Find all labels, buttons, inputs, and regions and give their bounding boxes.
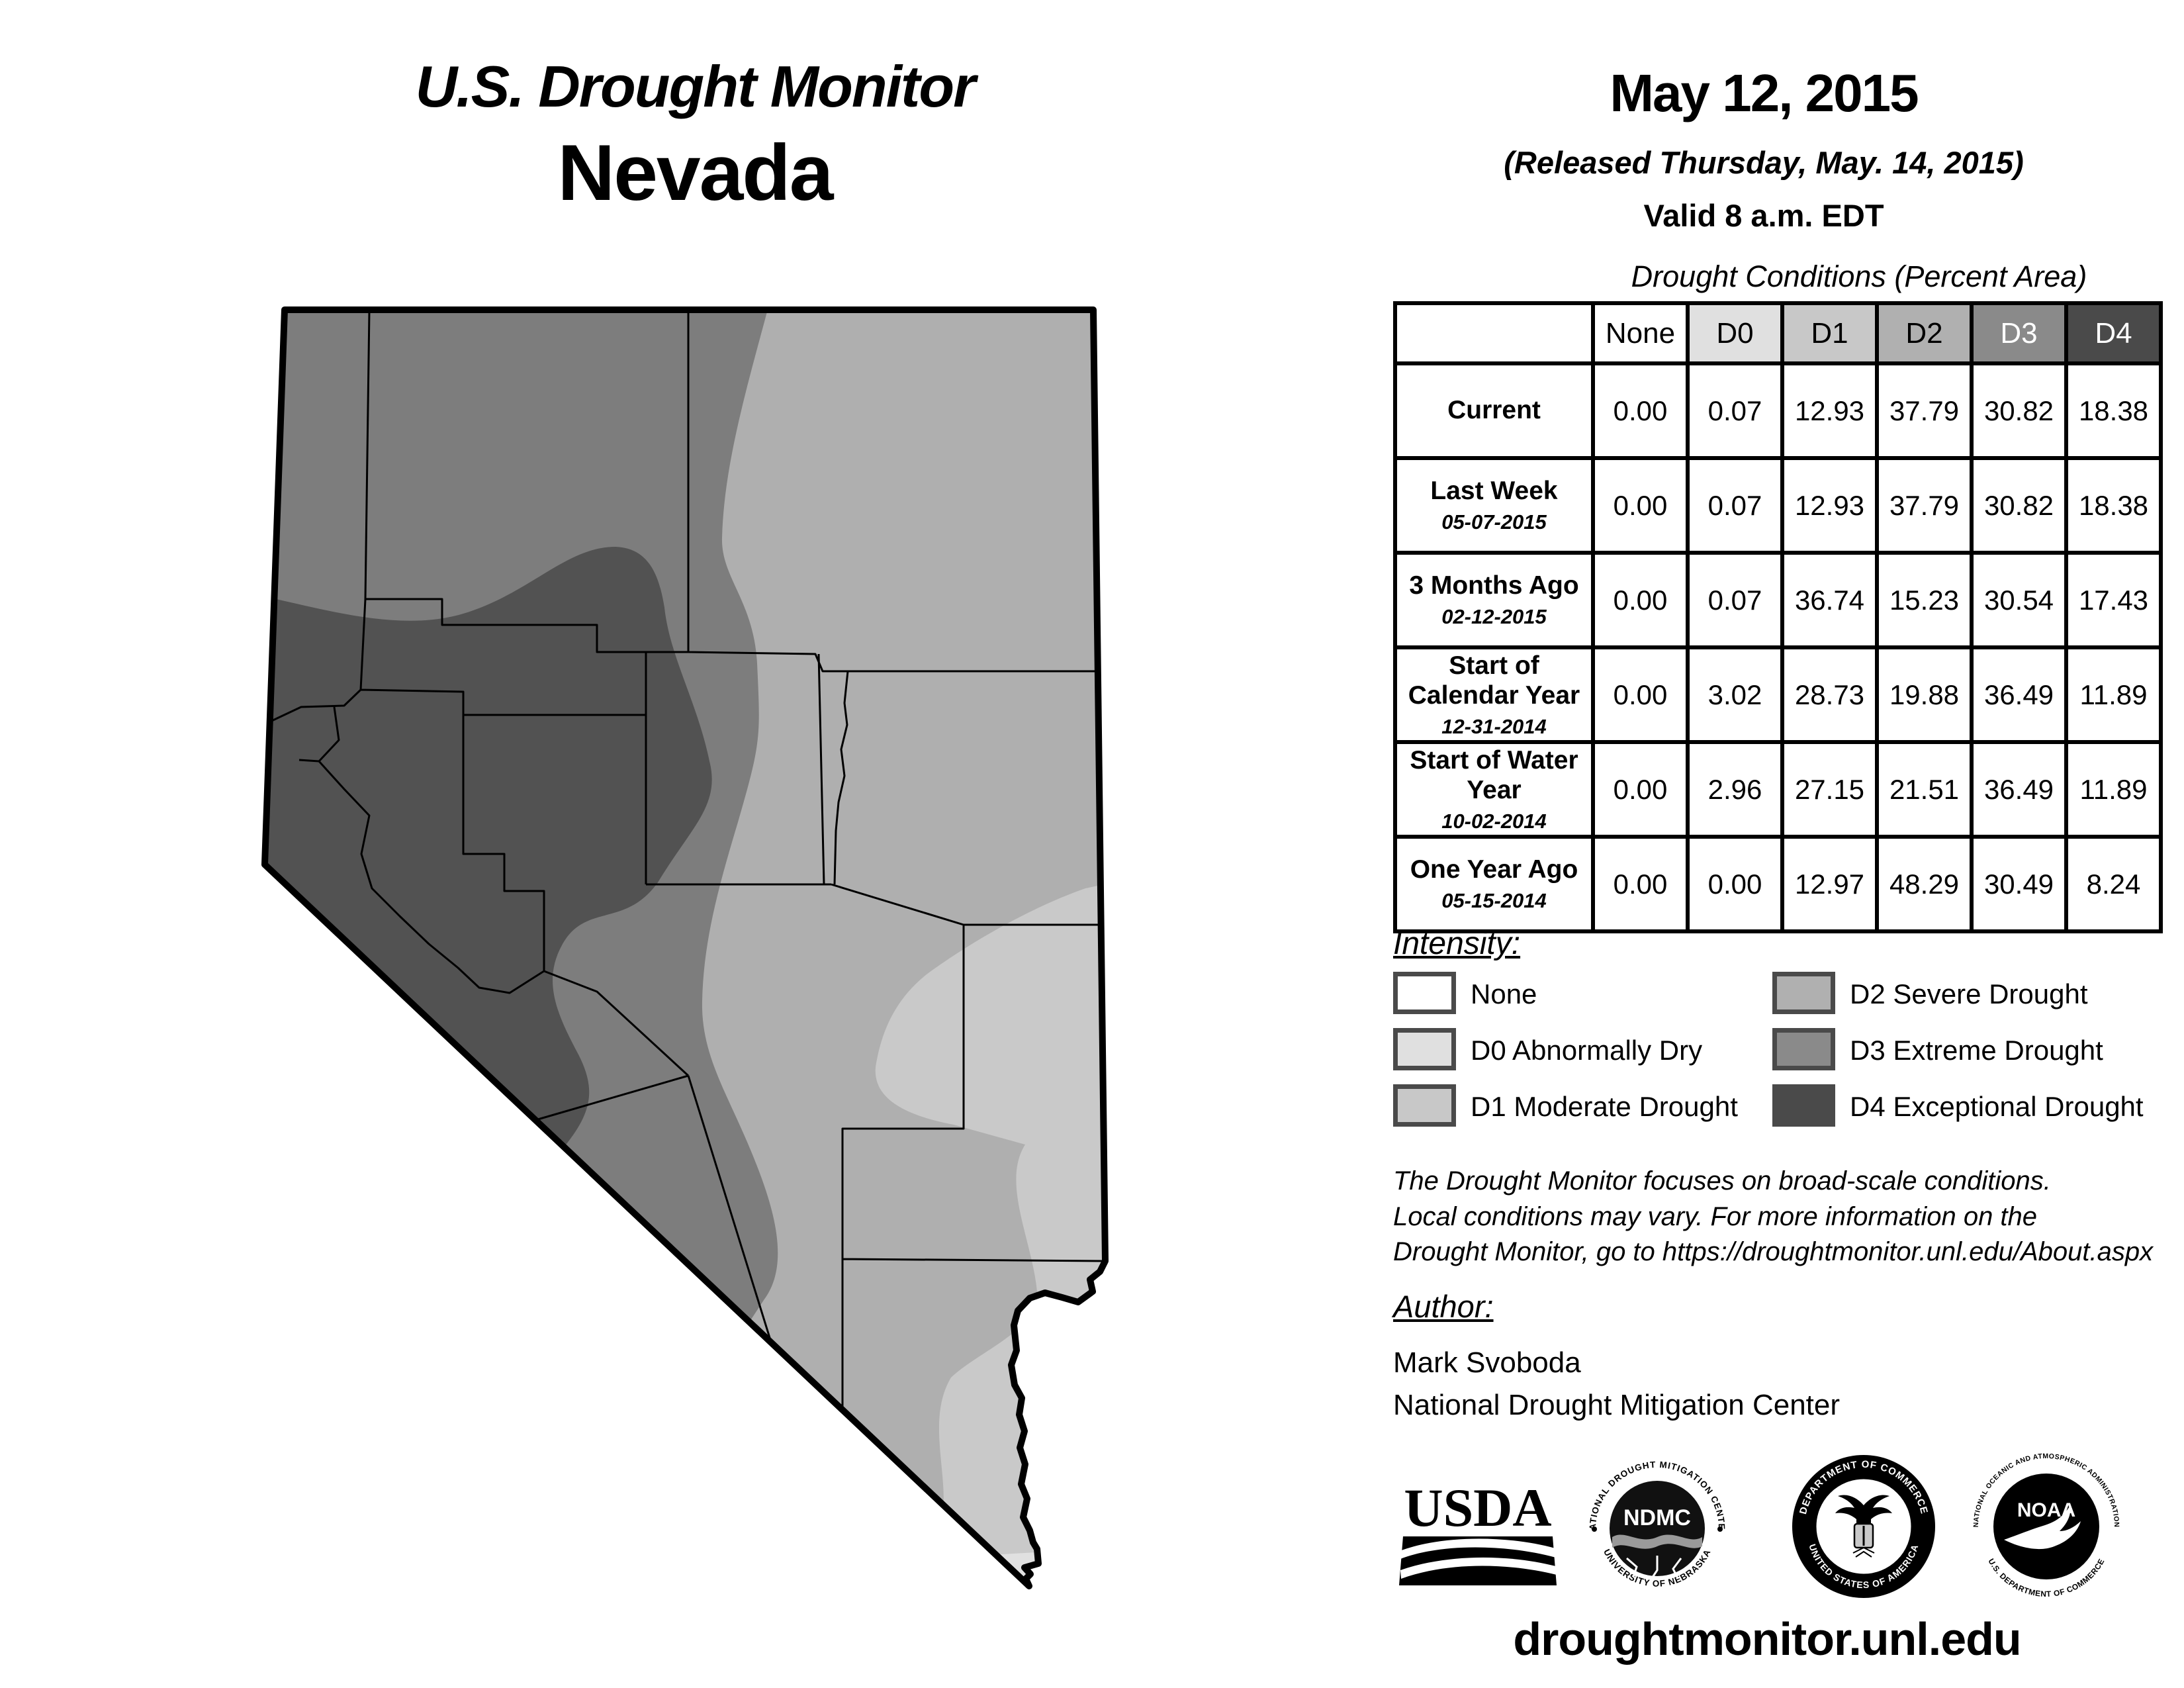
cell-value: 36.74 (1782, 553, 1877, 647)
legend-label-none: None (1471, 978, 1537, 1010)
table-row: 3 Months Ago02-12-2015 0.00 0.07 36.74 1… (1395, 553, 2161, 647)
noaa-logo: NATIONAL OCEANIC AND ATMOSPHERIC ADMINIS… (1967, 1447, 2126, 1609)
cell-value: 0.00 (1593, 553, 1688, 647)
legend-label-d2: D2 Severe Drought (1850, 978, 2088, 1010)
drought-conditions-table: None D0 D1 D2 D3 D4 Current 0.00 0.07 12… (1393, 301, 2163, 933)
cell-value: 11.89 (2066, 742, 2161, 837)
cell-value: 30.54 (1972, 553, 2066, 647)
noaa-logo-icon: NATIONAL OCEANIC AND ATMOSPHERIC ADMINIS… (1967, 1447, 2126, 1606)
cell-value: 0.00 (1593, 363, 1688, 458)
drought-monitor-report: { "titles": { "main": "U.S. Drought Moni… (0, 0, 2184, 1688)
row-date: 02-12-2015 (1397, 605, 1591, 629)
legend-swatch-d4 (1772, 1084, 1835, 1127)
cell-value: 28.73 (1782, 647, 1877, 742)
row-label: 3 Months Ago (1409, 571, 1578, 600)
row-label: Current (1447, 396, 1541, 424)
usda-logo: USDA (1395, 1479, 1561, 1595)
col-header-d4: D4 (2066, 303, 2161, 363)
cell-value: 37.79 (1877, 363, 1972, 458)
cell-value: 19.88 (1877, 647, 1972, 742)
col-header-d3: D3 (1972, 303, 2066, 363)
cell-value: 36.49 (1972, 647, 2066, 742)
legend-label-d0: D0 Abnormally Dry (1471, 1035, 1702, 1066)
cell-value: 27.15 (1782, 742, 1877, 837)
legend-swatch-none (1393, 972, 1456, 1014)
table-row: Current 0.00 0.07 12.93 37.79 30.82 18.3… (1395, 363, 2161, 458)
table-row: One Year Ago05-15-2014 0.00 0.00 12.97 4… (1395, 837, 2161, 931)
table-row: Start of Calendar Year12-31-2014 0.00 3.… (1395, 647, 2161, 742)
cell-value: 30.82 (1972, 458, 2066, 553)
table-row: Start of Water Year10-02-2014 0.00 2.96 … (1395, 742, 2161, 837)
cell-value: 0.00 (1593, 837, 1688, 931)
cell-value: 0.07 (1688, 553, 1782, 647)
col-header-d2: D2 (1877, 303, 1972, 363)
footer-url: droughtmonitor.unl.edu (1393, 1613, 2141, 1665)
dept-commerce-seal: DEPARTMENT OF COMMERCE UNITED STATES OF … (1787, 1450, 1940, 1607)
row-date: 10-02-2014 (1397, 810, 1591, 833)
row-label: Start of Water Year (1410, 746, 1578, 804)
cell-value: 3.02 (1688, 647, 1782, 742)
legend-label-d4: D4 Exceptional Drought (1850, 1091, 2144, 1123)
cell-value: 17.43 (2066, 553, 2161, 647)
cell-value: 18.38 (2066, 363, 2161, 458)
author-organization: National Drought Mitigation Center (1393, 1389, 1840, 1422)
cell-value: 15.23 (1877, 553, 1972, 647)
ndmc-logo: NATIONAL DROUGHT MITIGATION CENTER UNIVE… (1580, 1451, 1734, 1608)
disclaimer-line: Local conditions may vary. For more info… (1393, 1199, 2167, 1235)
cell-value: 37.79 (1877, 458, 1972, 553)
legend-label-d1: D1 Moderate Drought (1471, 1091, 1738, 1123)
table-title: Drought Conditions (Percent Area) (1587, 259, 2131, 294)
svg-text:NDMC: NDMC (1623, 1505, 1691, 1530)
cell-value: 30.82 (1972, 363, 2066, 458)
disclaimer-line: The Drought Monitor focuses on broad-sca… (1393, 1164, 2167, 1199)
dept-commerce-seal-icon: DEPARTMENT OF COMMERCE UNITED STATES OF … (1787, 1450, 1940, 1603)
legend-swatch-d2 (1772, 972, 1835, 1014)
table-corner-cell (1395, 303, 1593, 363)
usda-logo-icon: USDA (1395, 1479, 1561, 1592)
cell-value: 0.00 (1593, 742, 1688, 837)
cell-value: 12.93 (1782, 363, 1877, 458)
cell-value: 36.49 (1972, 742, 2066, 837)
cell-value: 0.07 (1688, 363, 1782, 458)
cell-value: 0.07 (1688, 458, 1782, 553)
table-row: Last Week05-07-2015 0.00 0.07 12.93 37.7… (1395, 458, 2161, 553)
col-header-d0: D0 (1688, 303, 1782, 363)
ndmc-logo-icon: NATIONAL DROUGHT MITIGATION CENTER UNIVE… (1580, 1451, 1734, 1605)
disclaimer-line: Drought Monitor, go to https://droughtmo… (1393, 1235, 2167, 1270)
author-heading: Author: (1393, 1288, 1494, 1325)
legend-title: Intensity: (1393, 925, 1520, 962)
page-title: U.S. Drought Monitor (265, 53, 1125, 120)
legend-label-d3: D3 Extreme Drought (1850, 1035, 2103, 1066)
cell-value: 0.00 (1593, 458, 1688, 553)
released-date: (Released Thursday, May. 14, 2015) (1403, 144, 2124, 181)
cell-value: 11.89 (2066, 647, 2161, 742)
legend-swatch-d0 (1393, 1028, 1456, 1070)
cell-value: 30.49 (1972, 837, 2066, 931)
cell-value: 12.97 (1782, 837, 1877, 931)
author-name: Mark Svoboda (1393, 1346, 1581, 1380)
cell-value: 0.00 (1688, 837, 1782, 931)
cell-value: 8.24 (2066, 837, 2161, 931)
table-header-row: None D0 D1 D2 D3 D4 (1395, 303, 2161, 363)
cell-value: 21.51 (1877, 742, 1972, 837)
map-date: May 12, 2015 (1403, 63, 2124, 124)
cell-value: 0.00 (1593, 647, 1688, 742)
valid-time: Valid 8 a.m. EDT (1403, 197, 2124, 234)
region-title: Nevada (265, 127, 1125, 218)
cell-value: 12.93 (1782, 458, 1877, 553)
row-date: 12-31-2014 (1397, 715, 1591, 739)
col-header-none: None (1593, 303, 1688, 363)
cell-value: 18.38 (2066, 458, 2161, 553)
legend-swatch-d1 (1393, 1084, 1456, 1127)
cell-value: 48.29 (1877, 837, 1972, 931)
row-label: Last Week (1430, 477, 1557, 505)
row-date: 05-07-2015 (1397, 510, 1591, 534)
row-label: Start of Calendar Year (1408, 651, 1580, 710)
col-header-d1: D1 (1782, 303, 1877, 363)
disclaimer-text: The Drought Monitor focuses on broad-sca… (1393, 1164, 2167, 1270)
cell-value: 2.96 (1688, 742, 1782, 837)
legend-swatch-d3 (1772, 1028, 1835, 1070)
svg-text:USDA: USDA (1404, 1479, 1551, 1538)
row-date: 05-15-2014 (1397, 889, 1591, 913)
row-label: One Year Ago (1410, 855, 1578, 884)
